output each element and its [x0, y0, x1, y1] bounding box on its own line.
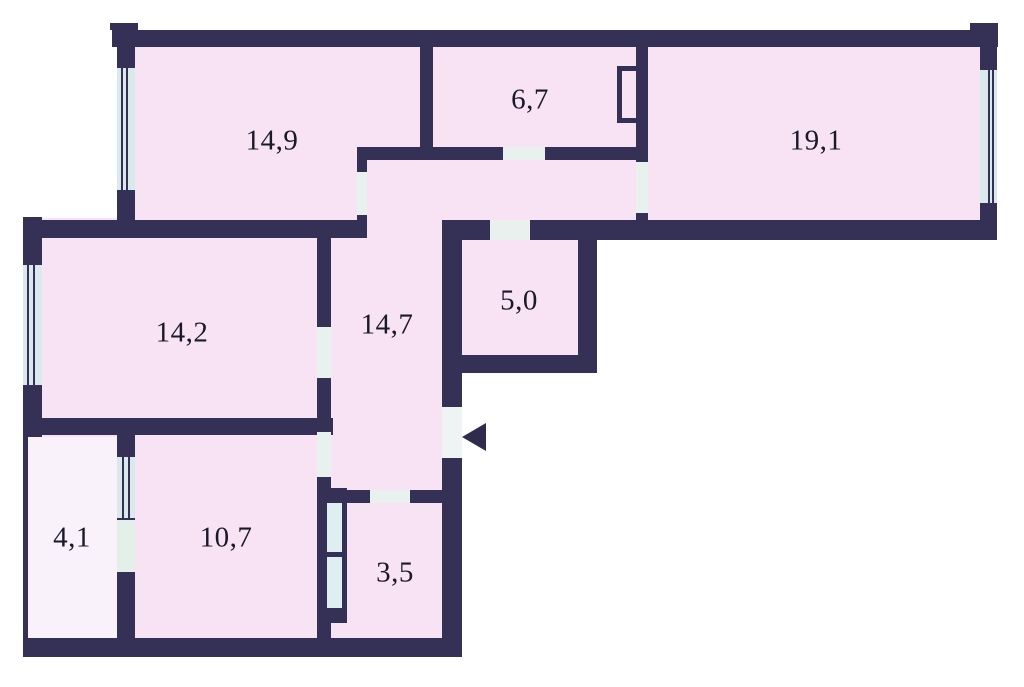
wall-top-right-tab — [970, 23, 998, 30]
room-label-14-7: 14,7 — [361, 309, 414, 342]
door-room191 — [636, 162, 648, 213]
room-label-3-5: 3,5 — [376, 557, 414, 590]
room-label-4-1: 4,1 — [53, 522, 91, 555]
shaft-cell-upper — [327, 503, 342, 552]
window-room191 — [980, 70, 997, 203]
wall-top — [112, 30, 998, 47]
wall-pantry-right — [578, 222, 597, 373]
duct-room67-icon — [617, 66, 641, 123]
door-room67 — [503, 147, 545, 160]
room-label-14-9: 14,9 — [246, 125, 299, 158]
door-room107 — [317, 432, 331, 477]
wall-plan-bottom — [23, 638, 462, 657]
wall-149-67 — [420, 30, 433, 160]
wall-balcony-left — [23, 437, 28, 657]
wall-room142-bottom — [23, 418, 333, 435]
room-label-10-7: 10,7 — [200, 522, 253, 555]
wall-room149-bottom — [23, 220, 367, 238]
room-label-19-1: 19,1 — [790, 125, 843, 158]
shaft-cell-lower — [327, 557, 342, 608]
window-balcony — [117, 457, 135, 518]
window-room142-glass-line — [27, 265, 29, 385]
window-room149-glass-line — [121, 68, 123, 190]
room-label-6-7: 6,7 — [511, 84, 549, 117]
wall-pantry-bottom — [442, 355, 597, 373]
room-label-5-0: 5,0 — [500, 285, 538, 318]
door-pantry — [490, 220, 530, 240]
window-room149 — [117, 68, 135, 190]
window-balcony-glass-line — [128, 457, 130, 518]
window-room191-glass-line — [992, 70, 994, 203]
wall-top-left-tab — [110, 23, 138, 30]
entrance-opening — [442, 407, 462, 458]
floor-plan: 14,96,719,114,214,75,04,110,73,5 — [0, 0, 1024, 687]
door-bath — [370, 490, 410, 503]
window-room191-glass-line — [988, 70, 990, 203]
wall-67-191-stub — [636, 213, 648, 222]
window-balcony-glass-line — [122, 457, 124, 518]
door-balcony — [117, 520, 135, 572]
entrance-arrow-icon — [462, 423, 486, 451]
room-label-14-2: 14,2 — [156, 317, 209, 350]
window-room142 — [23, 265, 42, 385]
door-room149 — [357, 172, 367, 215]
door-room142 — [317, 327, 331, 378]
window-room142-glass-line — [33, 265, 35, 385]
window-room149-glass-line — [126, 68, 128, 190]
